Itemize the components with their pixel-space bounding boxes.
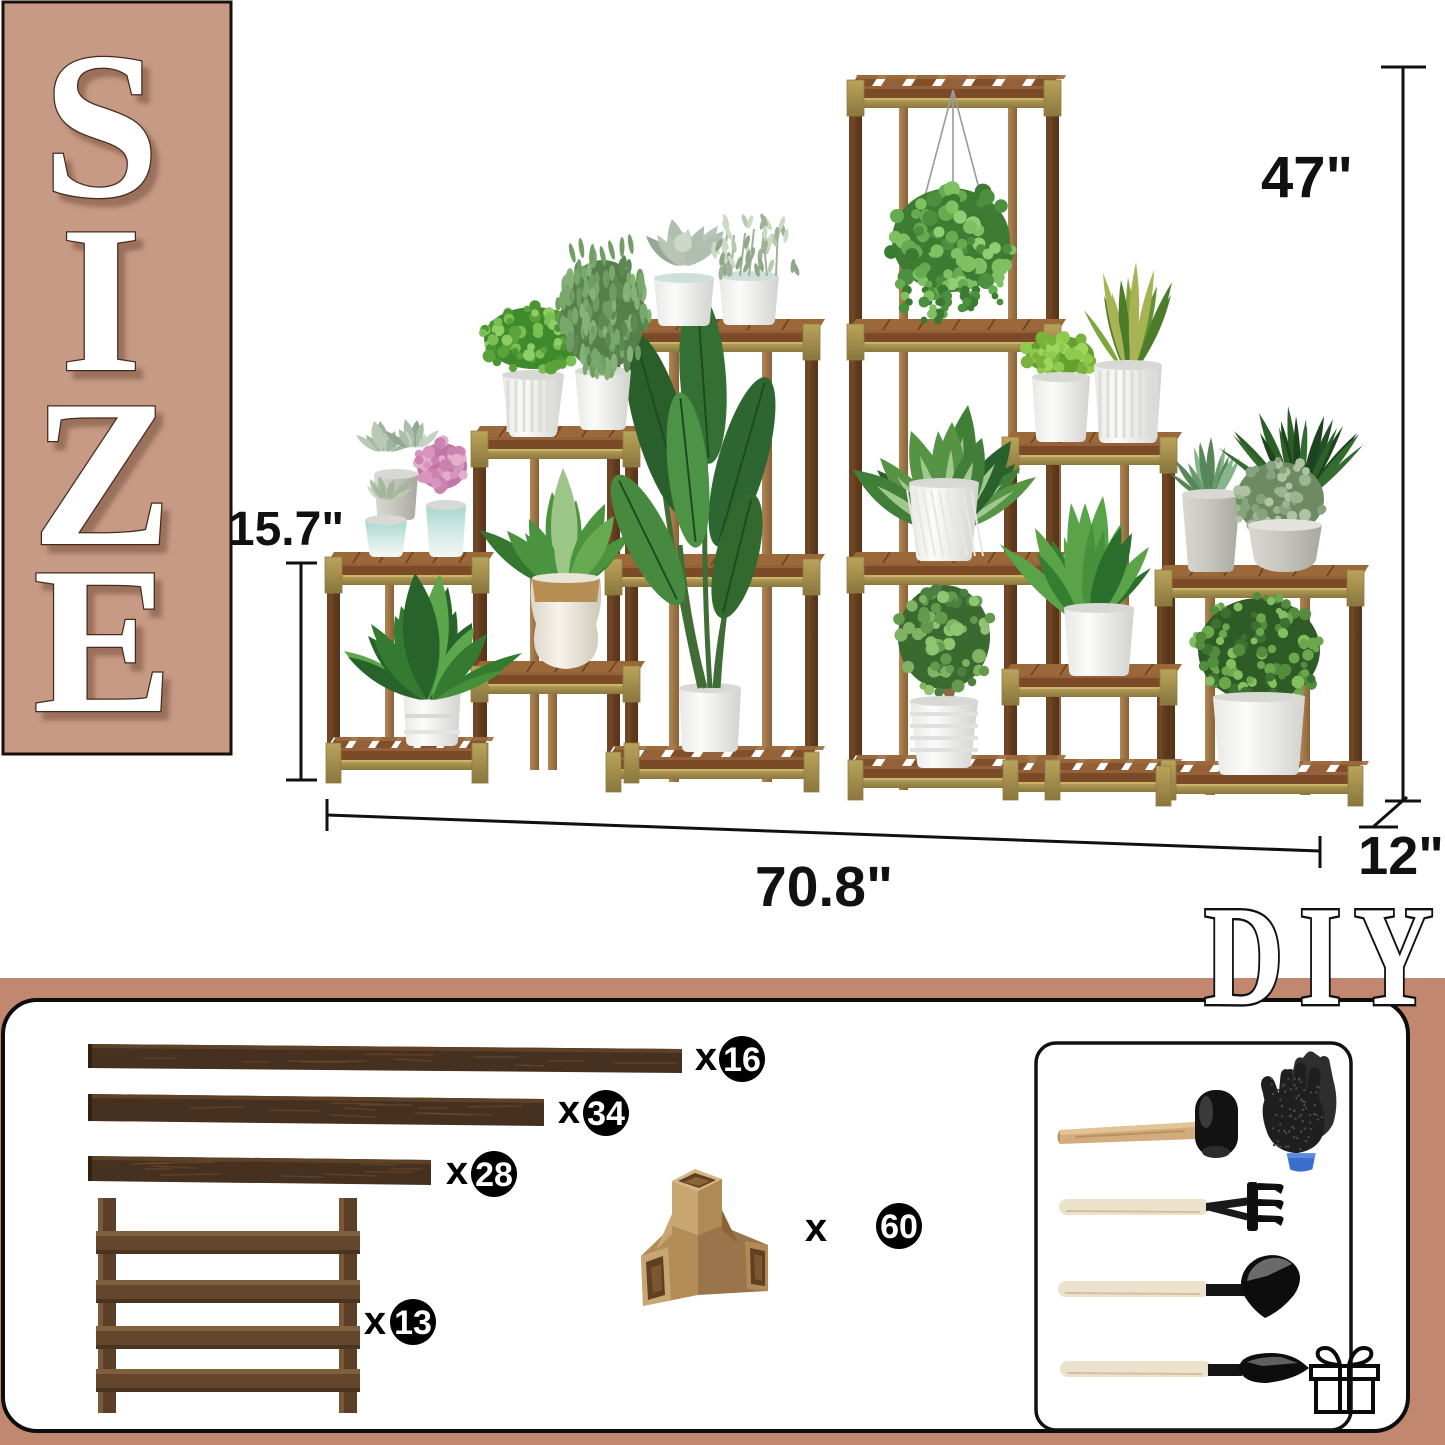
svg-text:16: 16 [723, 1041, 761, 1079]
svg-text:34: 34 [587, 1095, 625, 1133]
svg-text:E: E [33, 525, 173, 757]
svg-text:13: 13 [394, 1304, 432, 1342]
svg-text:x: x [446, 1149, 468, 1193]
svg-text:70.8": 70.8" [755, 855, 893, 919]
svg-text:Y: Y [1354, 876, 1433, 1035]
svg-text:15.7": 15.7" [228, 503, 344, 556]
svg-text:D: D [1204, 876, 1283, 1035]
svg-text:28: 28 [475, 1156, 513, 1194]
svg-text:60: 60 [880, 1208, 918, 1246]
svg-text:x: x [805, 1206, 827, 1250]
svg-text:x: x [558, 1088, 580, 1132]
svg-text:x: x [364, 1299, 386, 1343]
svg-text:x: x [695, 1035, 717, 1079]
svg-text:I: I [1299, 876, 1342, 1035]
svg-text:47": 47" [1261, 145, 1353, 210]
